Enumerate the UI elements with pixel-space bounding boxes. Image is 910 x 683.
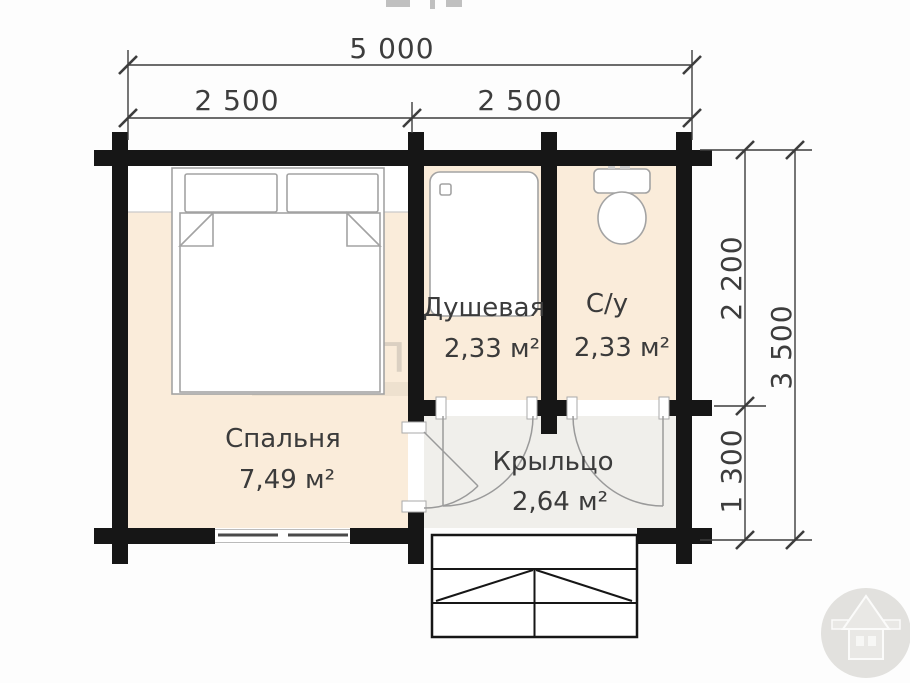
room-bedroom-label: Спальня <box>225 424 341 454</box>
wall-top <box>112 150 692 166</box>
dim-right-total: 3 500 <box>765 304 798 389</box>
dim-right-lower: 1 300 <box>715 428 748 513</box>
toilet-icon <box>594 165 650 244</box>
dim-right-upper: 2 200 <box>715 235 748 320</box>
bed-icon <box>172 168 384 394</box>
wall-right <box>676 150 692 544</box>
pillow-icon <box>185 174 277 212</box>
wall-bedroom-shower <box>408 150 424 432</box>
top-cropped-marks <box>386 0 462 9</box>
shower-drain <box>440 184 451 195</box>
dim-top-total: 5 000 <box>349 32 434 65</box>
floor-plan-canvas: Альп <box>0 0 910 683</box>
room-wc-label: С/у <box>586 289 628 319</box>
room-shower-label: Душевая <box>423 293 545 323</box>
room-bedroom-area: 7,49 м² <box>239 465 335 495</box>
wall-left <box>112 150 128 544</box>
wall-shower-wc <box>541 150 557 416</box>
room-porch-area: 2,64 м² <box>512 487 608 517</box>
pillow-icon <box>287 174 378 212</box>
floor-plan-page: Альп <box>0 0 910 683</box>
room-porch-label: Крыльцо <box>492 447 613 477</box>
house-logo-icon <box>821 588 910 678</box>
wall-bottom-porch <box>637 528 692 544</box>
wall-bedroom-porch-lower <box>408 508 424 544</box>
dim-top-right: 2 500 <box>477 84 562 117</box>
dim-top-left: 2 500 <box>194 84 279 117</box>
steps-icon <box>432 535 637 637</box>
window-icon <box>215 528 350 544</box>
room-shower-area: 2,33 м² <box>444 334 540 364</box>
room-wc-area: 2,33 м² <box>574 333 670 363</box>
